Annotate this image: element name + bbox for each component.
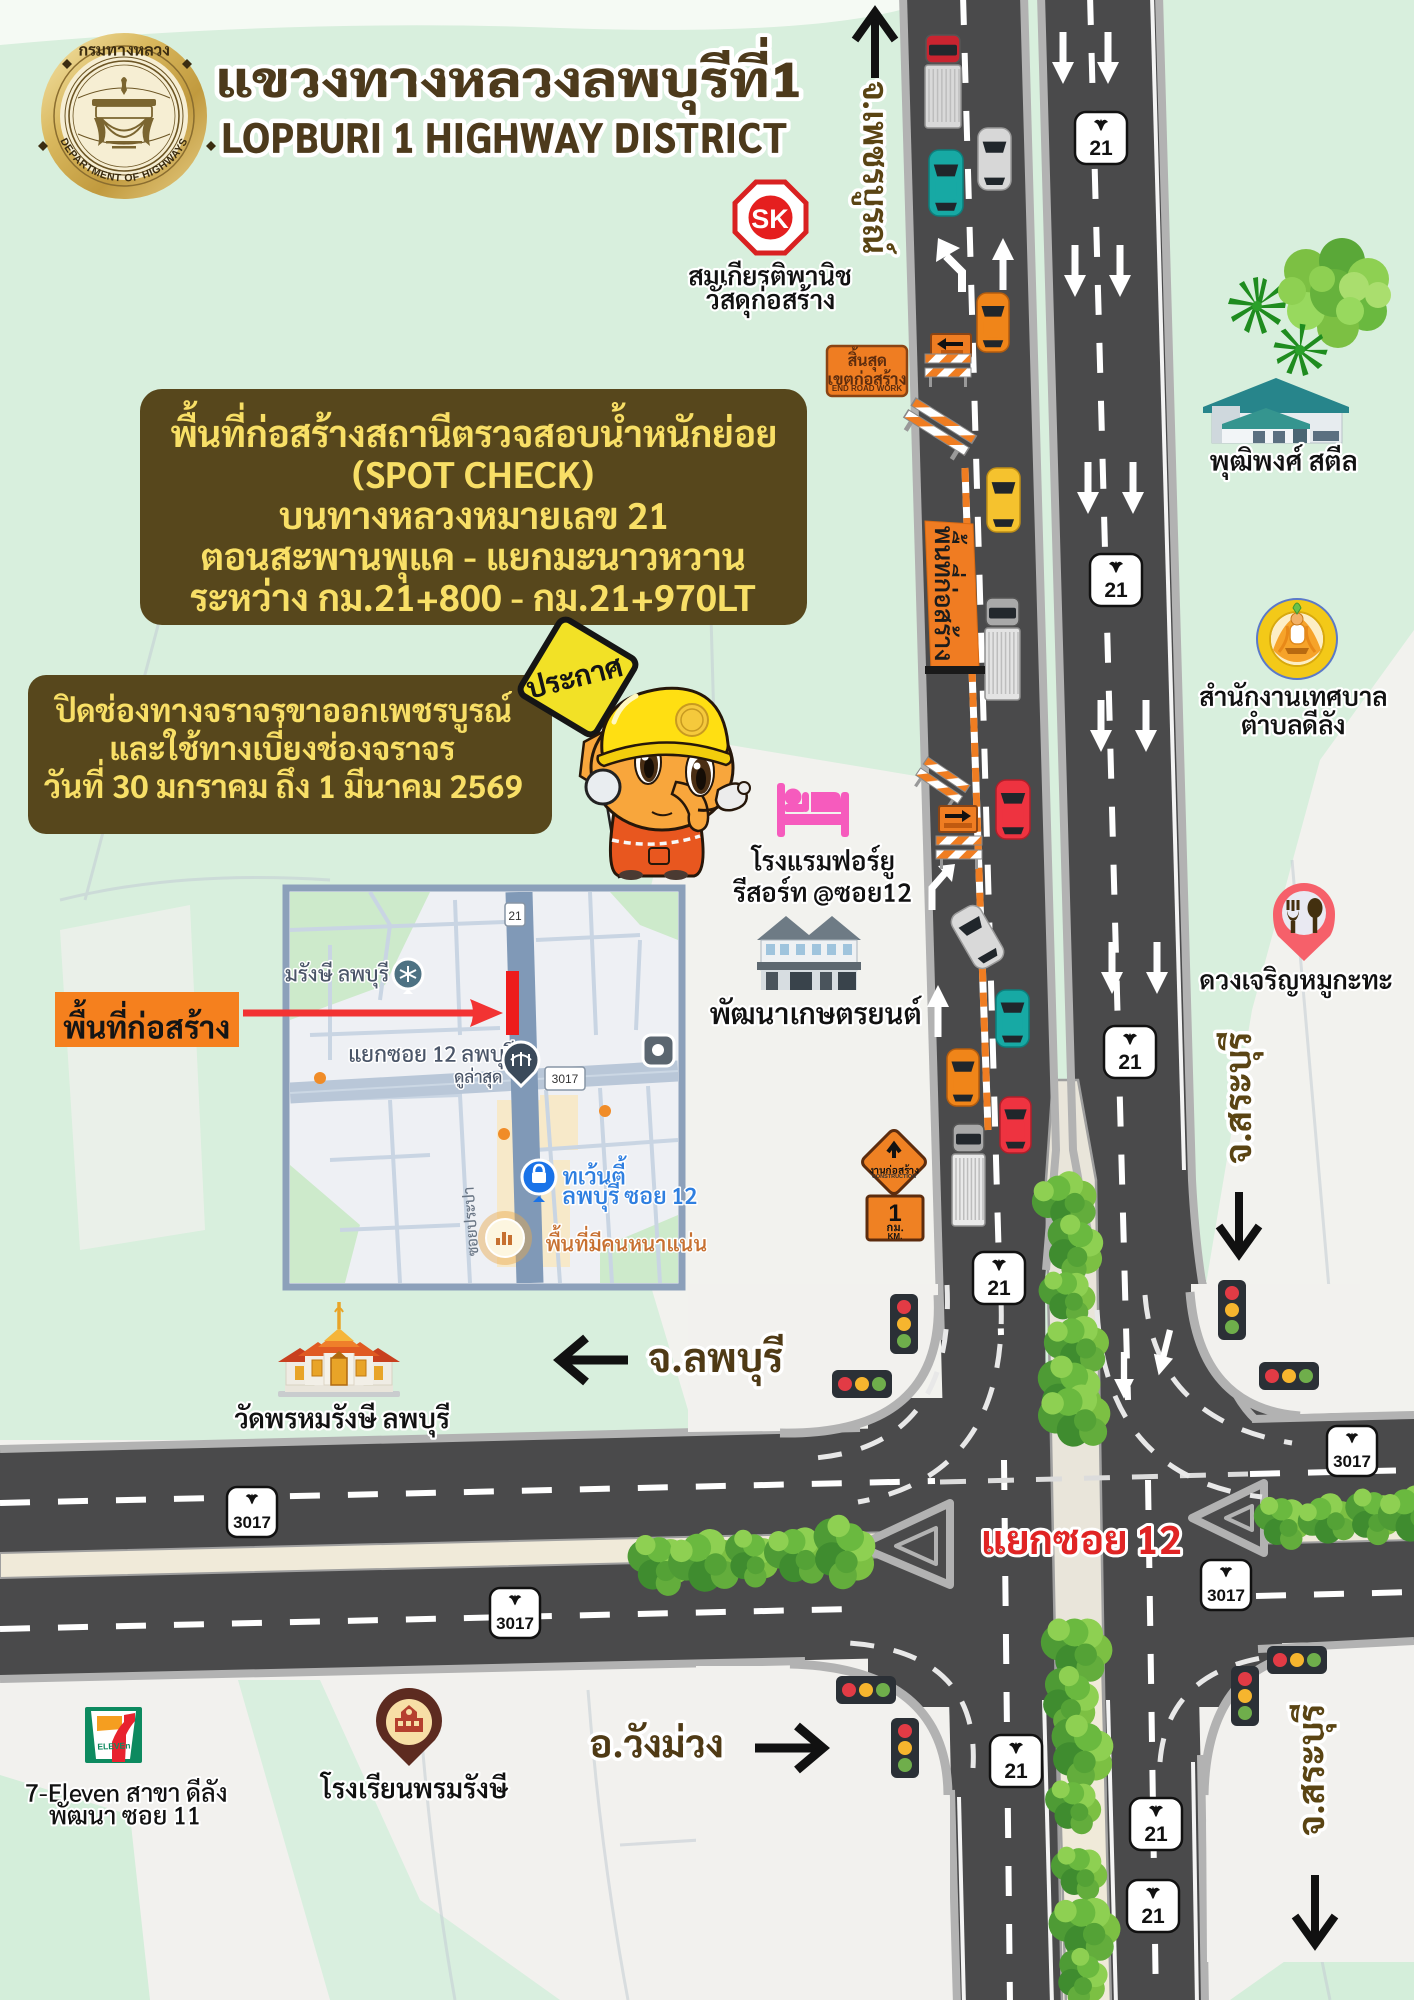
svg-text:ELEVEn: ELEVEn — [97, 1740, 130, 1751]
svg-text:1: 1 — [888, 1200, 901, 1227]
svg-text:3017: 3017 — [552, 1072, 579, 1086]
svg-text:SK: SK — [751, 204, 789, 234]
svg-text:CONSTRUCTION: CONSTRUCTION — [872, 1174, 916, 1180]
svg-text:KM.: KM. — [888, 1232, 903, 1241]
svg-text:END ROAD WORK: END ROAD WORK — [832, 384, 902, 393]
svg-text:21: 21 — [508, 909, 522, 923]
